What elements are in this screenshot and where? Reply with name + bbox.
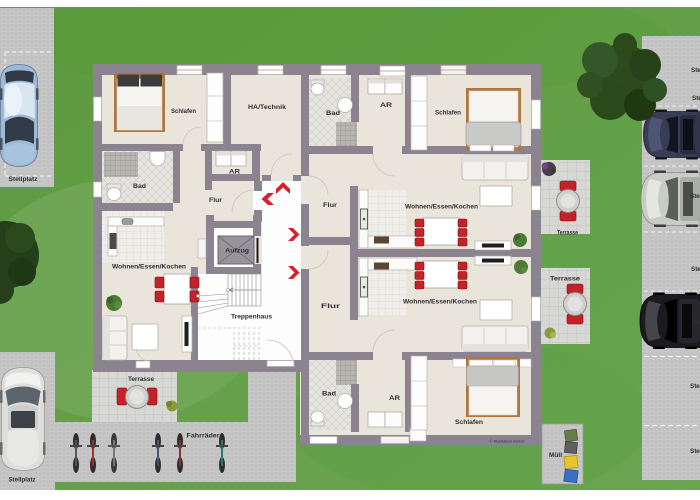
svg-text:Stellplatz: Stellplatz	[692, 319, 700, 326]
svg-text:Stellplatz: Stellplatz	[691, 266, 700, 273]
svg-text:Wohnen/Essen/Kochen: Wohnen/Essen/Kochen	[405, 204, 478, 211]
svg-text:Flur: Flur	[321, 303, 341, 310]
svg-text:Terrasse: Terrasse	[550, 276, 581, 283]
svg-text:Stellplatz: Stellplatz	[691, 67, 700, 74]
svg-text:AR: AR	[229, 169, 240, 176]
svg-text:Stellplatz: Stellplatz	[690, 193, 700, 200]
svg-text:Bad: Bad	[322, 391, 336, 398]
svg-text:AR: AR	[389, 395, 400, 402]
svg-text:Aufzug: Aufzug	[225, 248, 249, 255]
svg-text:Wohnen/Essen/Kochen: Wohnen/Essen/Kochen	[112, 264, 186, 271]
svg-text:Wohnen/Essen/Kochen: Wohnen/Essen/Kochen	[403, 299, 477, 306]
svg-text:Schlafen: Schlafen	[435, 110, 461, 117]
svg-text:Terrasse: Terrasse	[557, 230, 578, 237]
svg-text:AR: AR	[380, 102, 392, 109]
svg-text:Bad: Bad	[133, 183, 146, 190]
svg-text:Flur: Flur	[209, 197, 222, 204]
svg-text:Flur: Flur	[323, 202, 337, 209]
svg-text:Treppenhaus: Treppenhaus	[231, 314, 272, 321]
svg-text:Stellplatz: Stellplatz	[690, 448, 700, 455]
svg-text:Stellplatz: Stellplatz	[9, 176, 38, 183]
svg-text:Stellplatz: Stellplatz	[9, 477, 36, 484]
svg-text:© Illustration GmbH: © Illustration GmbH	[490, 439, 525, 444]
svg-text:Terrasse: Terrasse	[128, 376, 154, 383]
svg-text:Bad: Bad	[326, 110, 340, 117]
svg-text:Stellplatz: Stellplatz	[690, 383, 700, 390]
svg-text:Stellplatz: Stellplatz	[692, 95, 700, 102]
svg-text:HA/Technik: HA/Technik	[248, 104, 286, 111]
svg-text:Schlafen: Schlafen	[455, 419, 483, 426]
svg-text:Schlafen: Schlafen	[171, 108, 196, 115]
svg-text:Fahrräder: Fahrräder	[187, 433, 221, 440]
svg-text:Müll: Müll	[549, 452, 562, 459]
